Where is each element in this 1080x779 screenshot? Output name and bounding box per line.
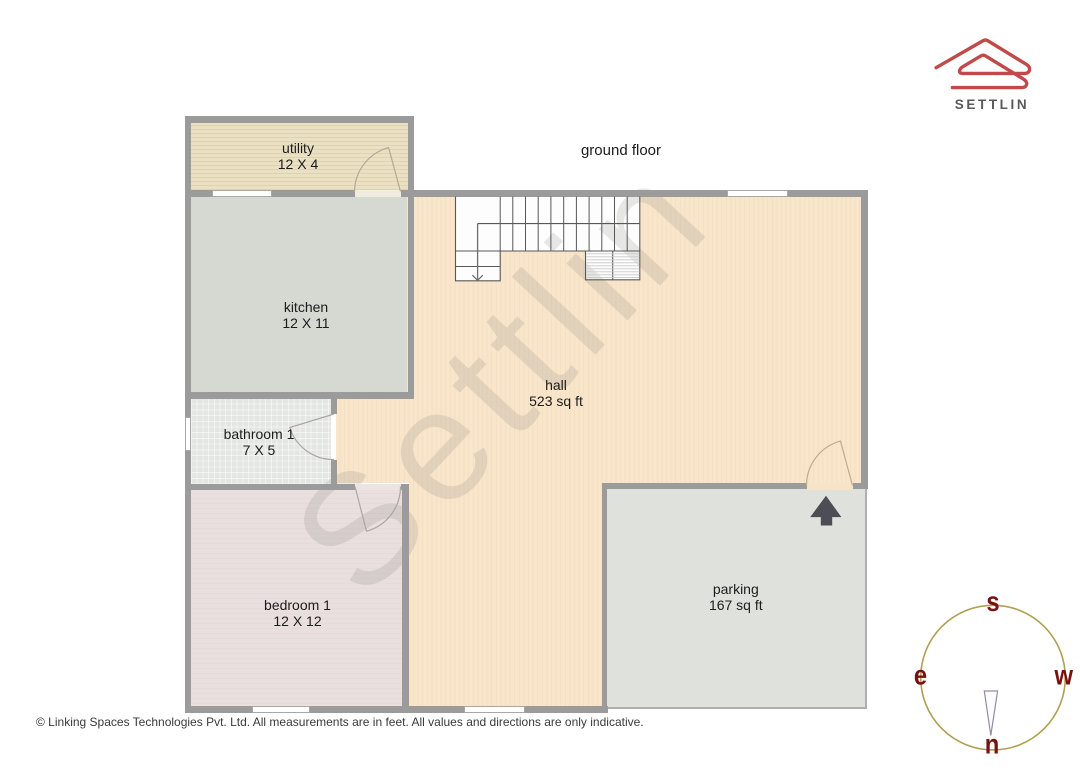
svg-text:w: w xyxy=(1054,659,1074,691)
svg-text:s: s xyxy=(986,585,999,617)
svg-text:e: e xyxy=(914,659,927,691)
svg-text:SETTLIN: SETTLIN xyxy=(955,97,1029,112)
svg-text:n: n xyxy=(985,728,1000,760)
